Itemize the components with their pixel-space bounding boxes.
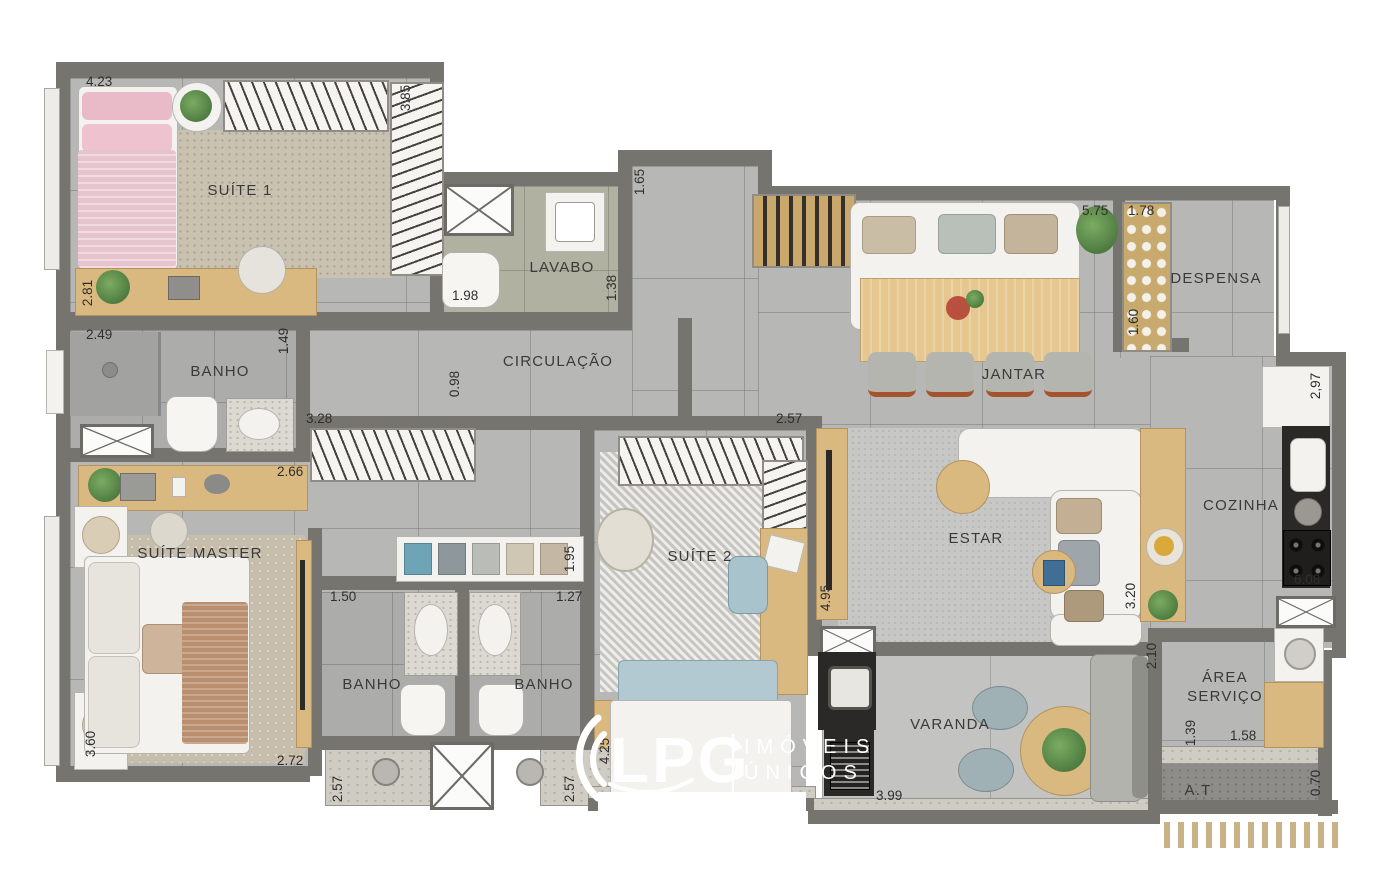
plant-icon: [1148, 590, 1178, 620]
cushion: [1056, 498, 1102, 534]
room-label-area-servico-2: SERVIÇO: [1187, 688, 1263, 705]
window-suite-master: [44, 516, 60, 766]
dim-banho-suite2-width: 1.27: [556, 589, 582, 604]
plant-icon: [180, 90, 212, 122]
floor-entry: [632, 166, 760, 420]
towel: [404, 543, 432, 575]
room-label-banho-suite1: BANHO: [190, 363, 249, 380]
plant-icon: [88, 468, 122, 502]
kitchen-sink: [1290, 438, 1326, 492]
dim-suite1-depth: 2.81: [80, 271, 96, 315]
toilet: [166, 396, 218, 452]
basket-icon: [82, 516, 120, 554]
blanket-suite1: [78, 150, 176, 268]
chair: [926, 352, 974, 397]
laptop-icon: [168, 276, 200, 300]
x-icon: [1279, 599, 1333, 625]
dim-lavabo-width: 1.98: [452, 288, 478, 303]
shower-drain-icon: [102, 362, 118, 378]
sink-basin: [478, 604, 512, 656]
room-label-cozinha: COZINHA: [1203, 497, 1279, 514]
dim-banho-master-depth: 2.57: [330, 767, 346, 811]
elevator-shaft: [430, 742, 494, 810]
wall: [632, 150, 772, 166]
dim-estar-width: 3.20: [1123, 574, 1139, 618]
hair-dryer-icon: [204, 474, 230, 494]
room-label-area-servico-1: ÁREA: [1202, 669, 1248, 686]
logo-underline-icon: [608, 778, 694, 800]
pillow: [82, 92, 172, 120]
room-label-varanda: VARANDA: [910, 716, 990, 733]
window-banho-suite1: [46, 350, 64, 414]
logo-tagline-2: ÚNICOS: [744, 762, 864, 785]
shower-glass: [158, 332, 161, 416]
window-suite1: [44, 88, 60, 270]
plant-icon: [96, 270, 130, 304]
dim-banho-suite1-depth: 1.49: [276, 319, 292, 363]
perfume-bottle: [172, 477, 186, 497]
room-label-jantar: JANTAR: [982, 366, 1046, 383]
gourmet-sink: [828, 666, 872, 710]
lavabo-sink: [555, 202, 595, 242]
dim-despensa-width: 1.78: [1128, 203, 1154, 218]
logo-swoosh-icon: [540, 712, 612, 804]
throw-blanket: [182, 602, 248, 744]
chair: [1044, 352, 1092, 397]
desk-chair: [728, 556, 768, 614]
room-label-banho-suite2: BANHO: [514, 676, 573, 693]
wine-rack: [752, 194, 856, 268]
towel: [472, 543, 500, 575]
towel: [506, 543, 534, 575]
dim-circulacao-depth: 0.98: [447, 362, 463, 406]
laptop-icon: [120, 473, 156, 501]
dim-corridor-shelf-depth: 1.95: [562, 537, 578, 581]
cushion: [862, 216, 916, 254]
dim-lavabo-depth: 1.38: [604, 266, 620, 310]
logo-tagline-1: IMÓVEIS: [744, 736, 876, 759]
pillow: [82, 124, 172, 152]
dim-master-closet-width: 3.28: [306, 411, 332, 426]
x-icon: [447, 187, 511, 233]
room-label-suite1: SUÍTE 1: [207, 182, 272, 199]
dim-servico-width: 1.58: [1230, 728, 1256, 743]
coffee-table: [936, 460, 990, 514]
chair: [958, 748, 1014, 792]
closet-suite2-right: [762, 460, 808, 534]
dim-varanda-depth: 2.10: [1144, 634, 1160, 678]
dim-cozinha-length: 6.08: [1294, 572, 1320, 587]
x-icon: [433, 745, 491, 807]
hanging-chair: [596, 508, 654, 572]
towel: [438, 543, 466, 575]
wall: [56, 62, 444, 78]
pillow-suite2: [618, 660, 778, 704]
dim-suite1-width: 4.23: [86, 74, 112, 89]
dim-varanda-width: 3.99: [876, 788, 902, 803]
chair: [868, 352, 916, 397]
pillow: [88, 562, 140, 654]
cushion: [938, 214, 996, 254]
cushion: [1004, 214, 1058, 254]
wall: [678, 318, 692, 420]
dim-suite-master-width: 2.72: [277, 753, 303, 768]
dim-entry-depth: 1.65: [632, 160, 648, 204]
room-label-despensa: DESPENSA: [1170, 270, 1261, 287]
plant-icon: [1042, 728, 1086, 772]
shower-head-icon: [372, 758, 400, 786]
sink-basin: [238, 408, 280, 440]
pan-icon: [1294, 498, 1322, 526]
flowers-icon: [966, 290, 984, 308]
dim-banho-master-width: 1.50: [330, 589, 356, 604]
dim-cozinha-window: 2,97: [1308, 364, 1324, 408]
dim-suite1-closet-depth: 3.85: [398, 76, 414, 120]
pergola-ticks: [1164, 822, 1342, 848]
tv-icon: [826, 450, 832, 590]
room-label-lavabo: LAVABO: [529, 259, 594, 276]
dim-despensa-depth: 1.60: [1126, 300, 1142, 344]
logo-divider: [732, 734, 734, 792]
washer-door-icon: [1284, 638, 1316, 670]
elevator-shaft: [444, 184, 514, 236]
sink-basin: [414, 604, 448, 656]
fruit-icon: [1154, 536, 1174, 556]
dim-banho-suite1-width: 2.49: [86, 327, 112, 342]
closet-suite1-top: [223, 80, 389, 132]
window-despensa: [1278, 206, 1290, 334]
dim-jantar-width: 5.75: [1082, 203, 1108, 218]
desk-chair: [238, 246, 286, 294]
wall: [618, 150, 632, 318]
floor-plan: SUÍTE 1 BANHO LAVABO CIRCULAÇÃO JANTAR D…: [0, 0, 1400, 886]
wall: [296, 330, 310, 462]
cushion: [1064, 590, 1104, 622]
dim-servico-depth: 1.39: [1183, 711, 1199, 755]
laundry-counter: [1264, 682, 1324, 748]
book-icon: [1043, 560, 1065, 586]
room-label-circulacao: CIRCULAÇÃO: [503, 353, 613, 370]
x-icon: [83, 427, 151, 455]
closet-master: [310, 428, 476, 482]
wall: [808, 810, 1160, 824]
room-label-banho-master: BANHO: [342, 676, 401, 693]
duct-shaft: [1276, 596, 1336, 628]
dim-suite-master-depth: 3.60: [83, 722, 99, 766]
tv-icon: [300, 560, 305, 710]
duct-shaft: [80, 424, 154, 458]
room-label-suite2: SUÍTE 2: [667, 548, 732, 565]
room-label-suite-master: SUÍTE MASTER: [137, 545, 262, 562]
dim-estar-depth: 4.95: [818, 576, 834, 620]
dim-master-shelf-width: 2.66: [277, 464, 303, 479]
room-label-estar: ESTAR: [949, 530, 1004, 547]
toilet: [400, 684, 446, 736]
room-label-area-tecnica: A.T: [1185, 782, 1212, 799]
dim-suite2-closet-width: 2.57: [776, 411, 802, 426]
dim-at-depth: 0.70: [1308, 761, 1324, 805]
x-icon: [823, 629, 873, 653]
